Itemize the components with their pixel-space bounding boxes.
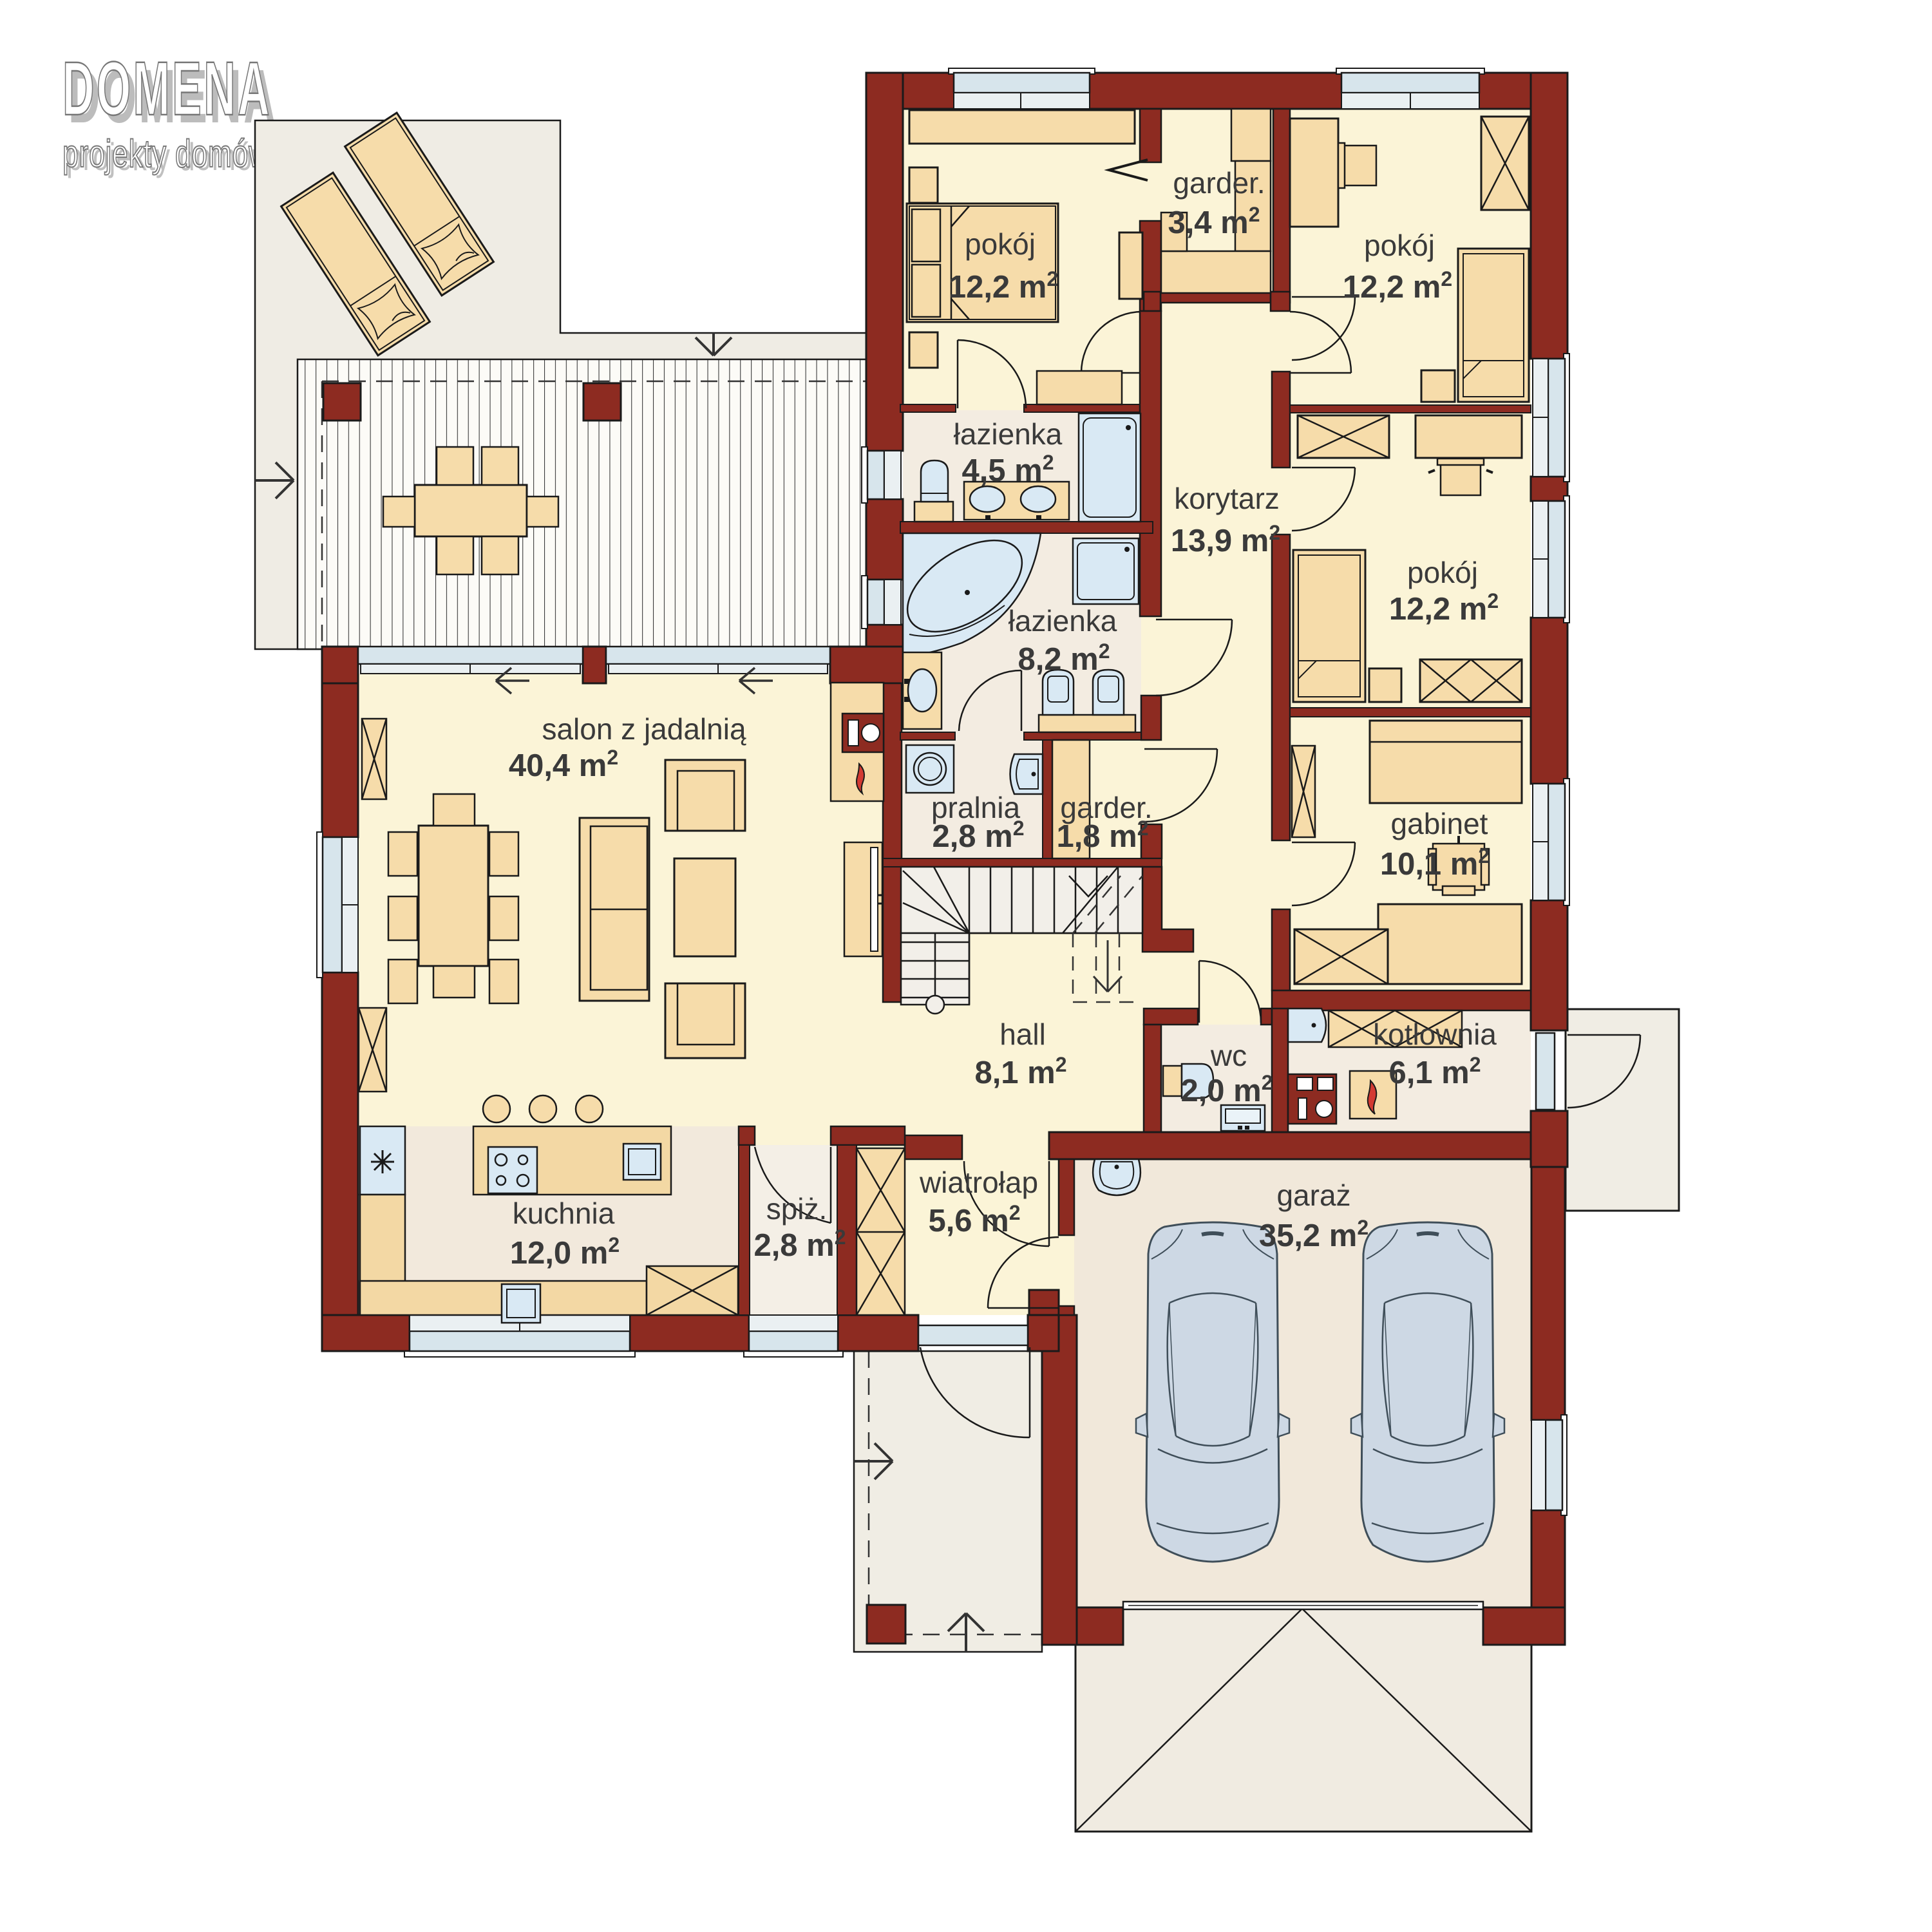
svg-text:3,4 m2: 3,4 m2 bbox=[1168, 203, 1260, 240]
svg-text:salon z jadalnią: salon z jadalnią bbox=[542, 712, 746, 746]
svg-text:8,2 m2: 8,2 m2 bbox=[1018, 639, 1110, 677]
svg-text:1,8 m2: 1,8 m2 bbox=[1056, 817, 1148, 854]
svg-text:40,4 m2: 40,4 m2 bbox=[509, 746, 618, 783]
svg-text:łazienka: łazienka bbox=[1009, 604, 1117, 638]
svg-text:gabinet: gabinet bbox=[1391, 807, 1488, 840]
svg-text:wiatrołap: wiatrołap bbox=[919, 1166, 1038, 1199]
svg-text:pokój: pokój bbox=[1407, 556, 1478, 589]
svg-text:12,2 m2: 12,2 m2 bbox=[1343, 267, 1452, 305]
svg-text:garder.: garder. bbox=[1173, 166, 1265, 200]
svg-text:wc: wc bbox=[1210, 1039, 1247, 1072]
svg-text:pokój: pokój bbox=[1364, 229, 1435, 262]
svg-text:5,6 m2: 5,6 m2 bbox=[928, 1201, 1020, 1238]
svg-text:łazienka: łazienka bbox=[954, 417, 1063, 451]
svg-text:2,8 m2: 2,8 m2 bbox=[753, 1226, 846, 1263]
svg-text:4,5 m2: 4,5 m2 bbox=[961, 451, 1054, 488]
svg-text:projekty domów: projekty domów bbox=[62, 132, 270, 175]
svg-text:garaż: garaż bbox=[1276, 1179, 1350, 1212]
svg-text:spiż.: spiż. bbox=[766, 1192, 828, 1226]
svg-text:kuchnia: kuchnia bbox=[513, 1197, 615, 1230]
svg-text:pokój: pokój bbox=[965, 227, 1036, 261]
svg-text:12,2 m2: 12,2 m2 bbox=[1389, 589, 1499, 627]
svg-text:13,9 m2: 13,9 m2 bbox=[1171, 521, 1280, 558]
svg-text:DOMENA: DOMENA bbox=[62, 46, 272, 131]
svg-text:korytarz: korytarz bbox=[1174, 482, 1280, 515]
svg-text:35,2 m2: 35,2 m2 bbox=[1259, 1216, 1368, 1253]
svg-text:6,1 m2: 6,1 m2 bbox=[1388, 1053, 1481, 1090]
svg-text:2,8 m2: 2,8 m2 bbox=[932, 817, 1024, 854]
svg-text:12,2 m2: 12,2 m2 bbox=[949, 267, 1058, 305]
svg-text:kotłownia: kotłownia bbox=[1373, 1018, 1497, 1051]
svg-text:10,1 m2: 10,1 m2 bbox=[1380, 844, 1490, 882]
svg-text:12,0 m2: 12,0 m2 bbox=[510, 1233, 620, 1271]
svg-text:hall: hall bbox=[999, 1018, 1046, 1051]
svg-text:8,1 m2: 8,1 m2 bbox=[974, 1053, 1066, 1090]
svg-text:2,0 m2: 2,0 m2 bbox=[1180, 1071, 1273, 1108]
